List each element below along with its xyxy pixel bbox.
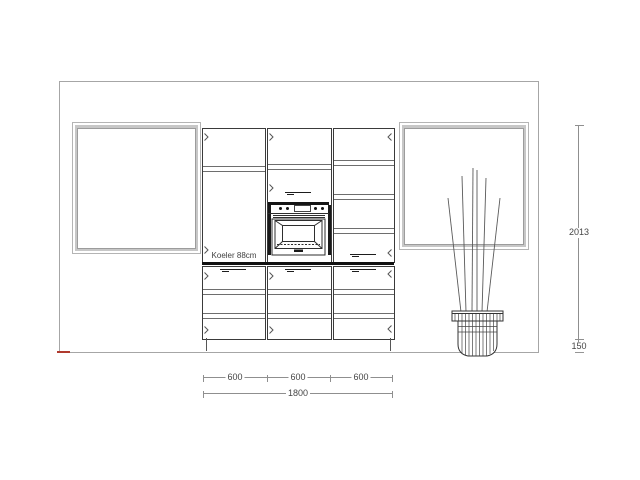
cabinet-shelf	[334, 194, 394, 200]
window-opening	[77, 128, 196, 249]
base-cabinet-3[interactable]	[333, 266, 395, 340]
origin-marker	[57, 351, 70, 353]
oven-knob	[314, 207, 317, 210]
dimension-tick	[575, 352, 584, 353]
cabinet-shelf	[268, 313, 331, 319]
cabinet-shelf	[334, 289, 394, 295]
door-swing-arrow	[204, 246, 209, 254]
drawing-canvas: Koeler 88cm	[0, 0, 640, 480]
oven-knob	[286, 207, 289, 210]
window-frame	[75, 125, 198, 251]
dimension-width-segments: 600 600 600	[203, 377, 393, 378]
door-swing-arrow	[204, 272, 209, 280]
dimension-total-width: 1800	[203, 393, 393, 394]
cabinet-shelf	[334, 228, 394, 234]
base-cabinet-1[interactable]	[202, 266, 266, 340]
dimension-label: 600	[351, 373, 370, 383]
dimension-tick	[330, 375, 331, 382]
worktop-line	[202, 262, 394, 265]
door-handle	[220, 269, 246, 270]
dimension-tick	[203, 375, 204, 382]
dimension-label: 2013	[567, 228, 591, 238]
dimension-label: 600	[225, 373, 244, 383]
oven-door	[268, 212, 329, 262]
cabinet-shelf	[268, 289, 331, 295]
dimension-label: 600	[288, 373, 307, 383]
fridge-label: Koeler 88cm	[203, 251, 265, 260]
dimension-tick	[575, 339, 584, 340]
cabinet-shelf	[268, 164, 331, 170]
oven-knob	[321, 207, 324, 210]
dimension-tick	[575, 125, 584, 126]
door-swing-arrow	[204, 326, 209, 334]
tall-cabinet-fridge[interactable]: Koeler 88cm	[202, 128, 266, 263]
oven-display	[294, 205, 311, 212]
tall-cabinet-shelves[interactable]	[333, 128, 395, 263]
plinth	[206, 338, 391, 351]
door-handle	[350, 254, 376, 255]
dimension-tick	[392, 391, 393, 398]
cabinet-shelf	[334, 160, 394, 166]
door-swing-arrow	[269, 184, 274, 192]
oven-knob	[279, 207, 282, 210]
dimension-tick	[267, 375, 268, 382]
dimension-tick	[392, 375, 393, 382]
door-swing-arrow	[387, 133, 392, 141]
fridge-divider	[203, 166, 265, 172]
dimension-heights: 2013 150	[578, 125, 579, 353]
door-handle	[285, 269, 311, 270]
oven-unit[interactable]	[267, 202, 332, 262]
door-swing-arrow	[387, 270, 392, 278]
base-cabinet-2[interactable]	[267, 266, 332, 340]
cabinet-shelf	[203, 289, 265, 295]
door-handle	[285, 192, 311, 193]
window-left[interactable]	[72, 122, 201, 254]
cabinet-shelf	[334, 313, 394, 319]
plant-pot	[452, 311, 503, 356]
dimension-label: 1800	[286, 389, 310, 399]
plant-stems	[448, 168, 500, 312]
cabinet-shelf	[203, 313, 265, 319]
door-swing-arrow	[387, 249, 392, 257]
door-swing-arrow	[204, 133, 209, 141]
door-swing-arrow	[387, 325, 392, 333]
door-swing-arrow	[269, 326, 274, 334]
dimension-label: 150	[569, 342, 588, 352]
plant-in-pot[interactable]	[434, 162, 520, 358]
dimension-tick	[203, 391, 204, 398]
door-handle	[350, 269, 376, 270]
door-swing-arrow	[269, 133, 274, 141]
door-swing-arrow	[269, 272, 274, 280]
